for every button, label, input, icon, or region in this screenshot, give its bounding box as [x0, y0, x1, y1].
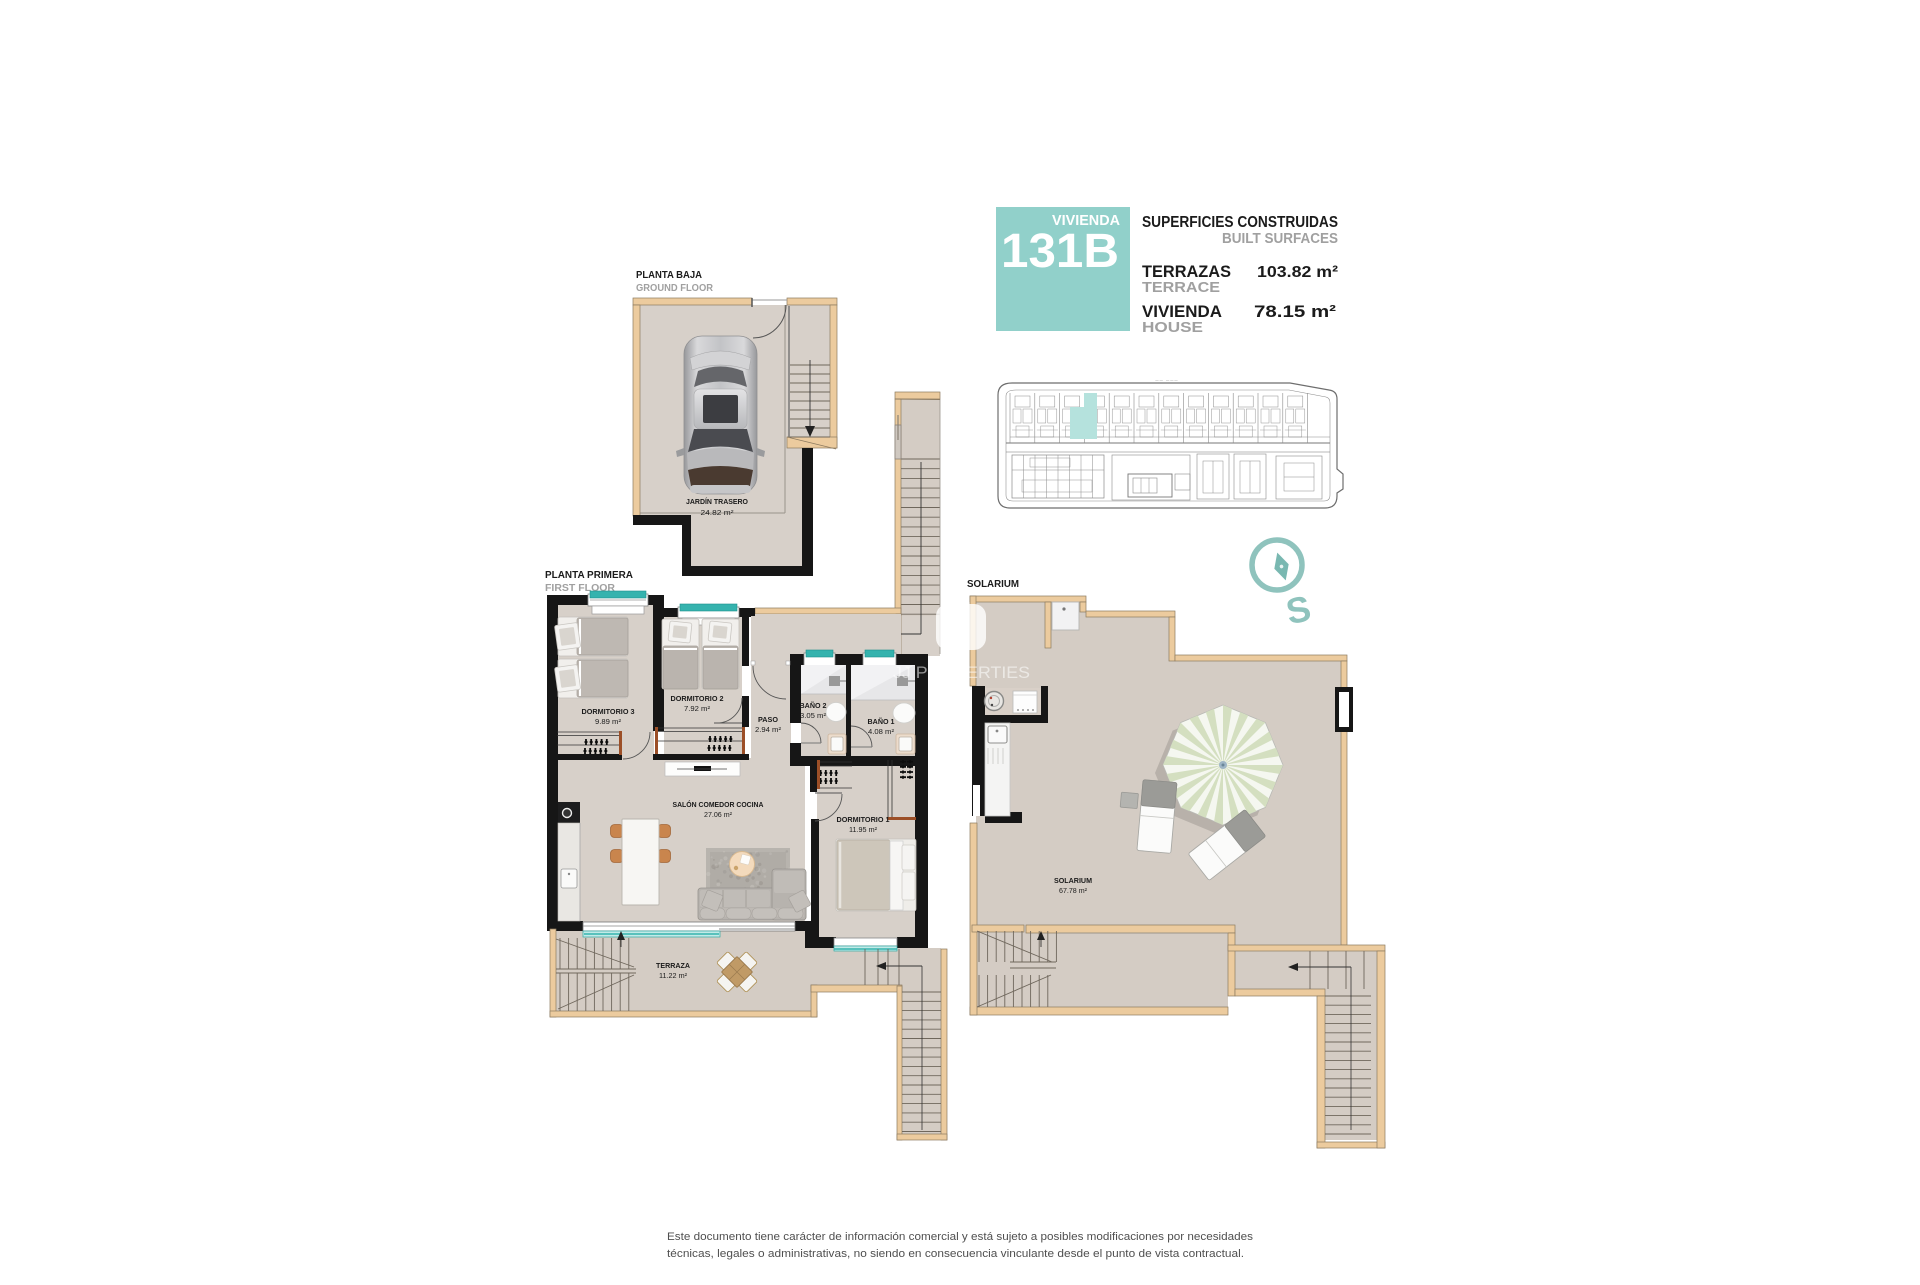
svg-text:11.22 m²: 11.22 m²	[659, 973, 688, 980]
svg-text:DORMITORIO 3: DORMITORIO 3	[582, 707, 635, 716]
svg-text:GROUND FLOOR: GROUND FLOOR	[636, 283, 714, 294]
svg-text:67.78 m²: 67.78 m²	[1059, 888, 1088, 895]
svg-text:7.92 m²: 7.92 m²	[684, 706, 711, 713]
svg-text:DORMITORIO 2: DORMITORIO 2	[671, 694, 724, 703]
svg-text:78.15 m²: 78.15 m²	[1254, 303, 1337, 321]
svg-text:PLANTA PRIMERA: PLANTA PRIMERA	[545, 570, 633, 581]
svg-text:técnicas, legales o administra: técnicas, legales o administrativas, no …	[667, 1248, 1244, 1260]
svg-text:PASO: PASO	[758, 715, 778, 724]
svg-text:SALÓN COMEDOR COCINA: SALÓN COMEDOR COCINA	[673, 800, 765, 809]
svg-text:4.08 m²: 4.08 m²	[868, 729, 895, 736]
svg-text:TERRAZA: TERRAZA	[656, 961, 691, 970]
svg-text:TERRAZAS: TERRAZAS	[1142, 263, 1231, 281]
svg-text:BAÑO 2: BAÑO 2	[800, 701, 827, 710]
svg-text:TERRACE: TERRACE	[1142, 280, 1220, 296]
svg-text:131B: 131B	[1001, 225, 1119, 278]
svg-text:SOLARIUM: SOLARIUM	[967, 579, 1019, 590]
svg-text:JARDÍN TRASERO: JARDÍN TRASERO	[686, 497, 748, 506]
svg-text:103.82 m²: 103.82 m²	[1257, 264, 1338, 281]
svg-text:BUILT SURFACES: BUILT SURFACES	[1222, 231, 1338, 247]
svg-text:11.95 m²: 11.95 m²	[849, 827, 878, 834]
svg-text:9.89 m²: 9.89 m²	[595, 719, 622, 726]
svg-text:PLANTA BAJA: PLANTA BAJA	[636, 270, 702, 281]
svg-text:SOLARIUM: SOLARIUM	[1054, 876, 1092, 885]
svg-text:3.05 m²: 3.05 m²	[800, 713, 827, 720]
svg-text:2.94 m²: 2.94 m²	[755, 727, 782, 734]
svg-text:VIVIENDA: VIVIENDA	[1142, 303, 1222, 321]
svg-text:DORMITORIO 1: DORMITORIO 1	[837, 815, 890, 824]
svg-text:── ───: ── ───	[1154, 378, 1178, 383]
svg-text:SUPERFICIES CONSTRUIDAS: SUPERFICIES CONSTRUIDAS	[1142, 214, 1338, 231]
svg-text:BAÑO 1: BAÑO 1	[868, 717, 895, 726]
svg-text:JJ PROPERTIES: JJ PROPERTIES	[893, 663, 1030, 682]
svg-text:Este documento tiene carácter: Este documento tiene carácter de informa…	[667, 1231, 1254, 1243]
svg-text:24.82 m²: 24.82 m²	[701, 510, 735, 517]
svg-text:HOUSE: HOUSE	[1142, 320, 1203, 336]
svg-text:27.06 m²: 27.06 m²	[704, 812, 733, 819]
